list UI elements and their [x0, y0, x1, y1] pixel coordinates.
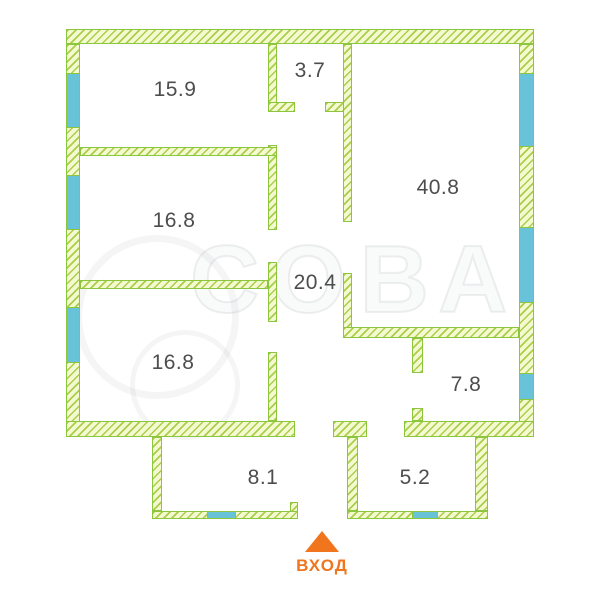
wall-segment	[404, 421, 534, 437]
room-area-label: 15.9	[154, 78, 197, 102]
entrance-label: ВХОД	[296, 556, 348, 576]
wall-segment	[80, 147, 277, 156]
wall-segment	[268, 352, 277, 421]
wall-segment	[343, 327, 519, 338]
room-area-label: 16.8	[153, 209, 196, 233]
window	[66, 175, 80, 230]
wall-segment	[343, 44, 352, 222]
room-area-label: 3.7	[295, 59, 326, 83]
wall-segment	[80, 280, 268, 289]
room-area-label: 5.2	[400, 466, 431, 490]
wall-segment	[66, 29, 534, 44]
wall-segment	[347, 437, 358, 511]
entrance-arrow-icon	[305, 531, 339, 552]
floor-plan: СОВА 15.93.740.816.820.416.87.88.15.2 ВХ…	[0, 0, 600, 600]
room-area-label: 8.1	[248, 466, 279, 490]
window	[519, 227, 534, 303]
wall-segment	[333, 421, 367, 437]
window	[66, 307, 80, 363]
window	[66, 73, 80, 128]
wall-segment	[475, 437, 488, 511]
window	[519, 73, 534, 147]
wall-segment	[66, 421, 295, 437]
room-area-label: 40.8	[417, 176, 460, 200]
room-area-label: 20.4	[294, 271, 337, 295]
window	[519, 373, 534, 400]
wall-segment	[290, 502, 298, 512]
wall-segment	[152, 437, 162, 511]
wall-segment	[268, 262, 277, 322]
wall-segment	[412, 338, 423, 373]
wall-segment	[268, 145, 277, 230]
window	[412, 511, 438, 519]
wall-segment	[268, 102, 295, 112]
room-area-label: 7.8	[451, 373, 482, 397]
window	[207, 511, 236, 519]
wall-segment	[412, 408, 423, 421]
room-area-label: 16.8	[152, 351, 195, 375]
